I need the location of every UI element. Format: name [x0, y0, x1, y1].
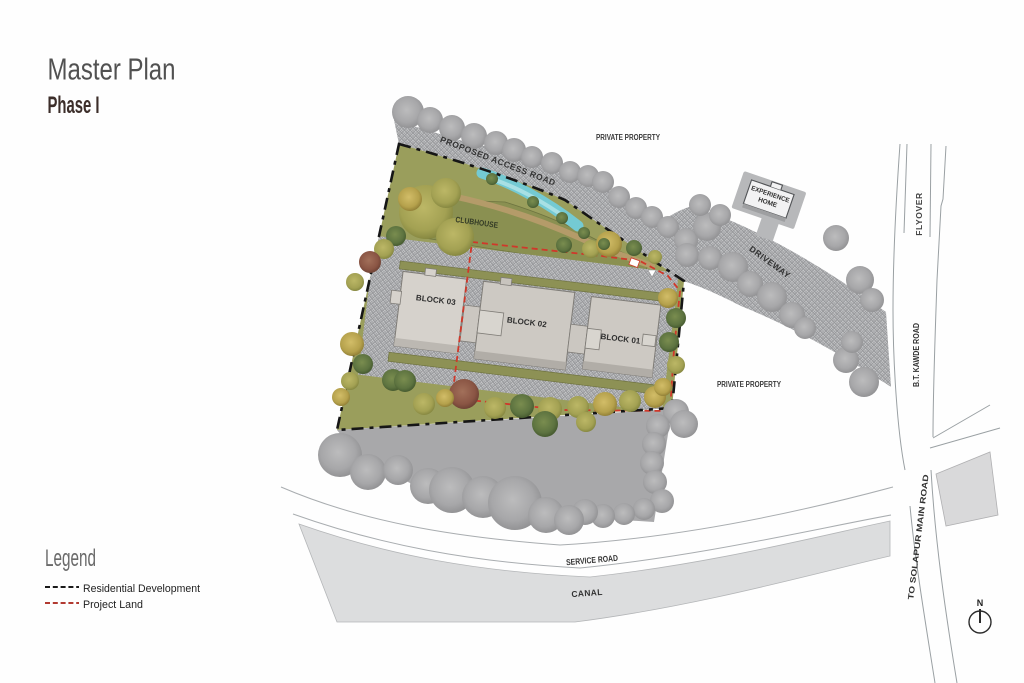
- svg-text:N: N: [977, 598, 984, 608]
- svg-text:B.T. KAWDE ROAD: B.T. KAWDE ROAD: [912, 323, 921, 387]
- svg-text:Legend: Legend: [45, 545, 96, 572]
- svg-text:PRIVATE PROPERTY: PRIVATE PROPERTY: [596, 133, 661, 142]
- svg-text:Phase I: Phase I: [48, 92, 100, 119]
- svg-text:FLYOVER: FLYOVER: [914, 192, 924, 236]
- svg-text:PRIVATE PROPERTY: PRIVATE PROPERTY: [717, 380, 782, 389]
- svg-text:Residential Development: Residential Development: [83, 583, 200, 595]
- svg-text:Project Land: Project Land: [83, 599, 143, 611]
- svg-text:Master Plan: Master Plan: [48, 52, 176, 87]
